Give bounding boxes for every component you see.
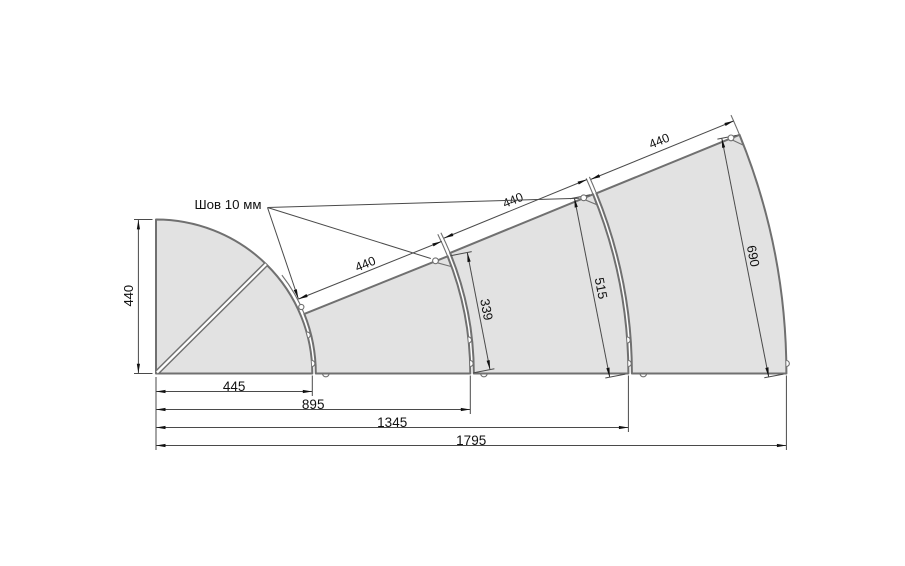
svg-text:1345: 1345 <box>377 415 407 430</box>
svg-text:Шов 10 мм: Шов 10 мм <box>195 197 262 212</box>
svg-text:1795: 1795 <box>456 433 486 448</box>
svg-text:895: 895 <box>302 397 325 412</box>
svg-text:445: 445 <box>223 379 246 394</box>
svg-text:440: 440 <box>121 285 136 307</box>
